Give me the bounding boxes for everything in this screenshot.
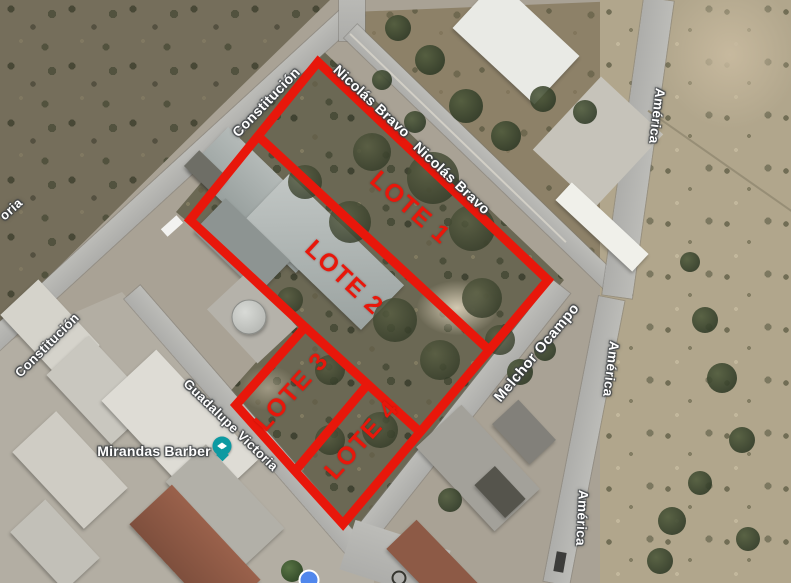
street-label-nicolas-bravo-1: Nicolás Bravo xyxy=(330,62,413,141)
street-label-constitucion-top: Constitución xyxy=(229,64,303,140)
lot-label-lote-2: LOTE 2 xyxy=(299,234,389,321)
street-label-america-top: América xyxy=(646,87,668,145)
barber-pin-glyph xyxy=(217,443,227,450)
poi-icon-partial-ring xyxy=(392,571,407,583)
poi-label-mirandas-barber[interactable]: Mirandas Barber xyxy=(97,443,210,459)
poi-icon-partial-blue[interactable] xyxy=(299,570,320,583)
street-label-constitucion-left: Constitución xyxy=(12,310,82,380)
street-label-america-mid: América xyxy=(600,340,622,398)
lot-label-lote-3: LOTE 3 xyxy=(249,346,335,437)
satellite-map[interactable]: Constitución Nicolás Bravo Nicolás Bravo… xyxy=(0,0,791,583)
barber-pin-icon[interactable] xyxy=(213,437,232,456)
street-label-america-bottom: América xyxy=(573,490,591,547)
street-label-melchor-ocampo: Melchor Ocampo xyxy=(491,301,582,406)
street-label-victoria-partial: oria xyxy=(0,195,25,223)
labels-layer: Constitución Nicolás Bravo Nicolás Bravo… xyxy=(0,0,791,583)
lot-label-lote-4: LOTE 4 xyxy=(319,394,405,485)
